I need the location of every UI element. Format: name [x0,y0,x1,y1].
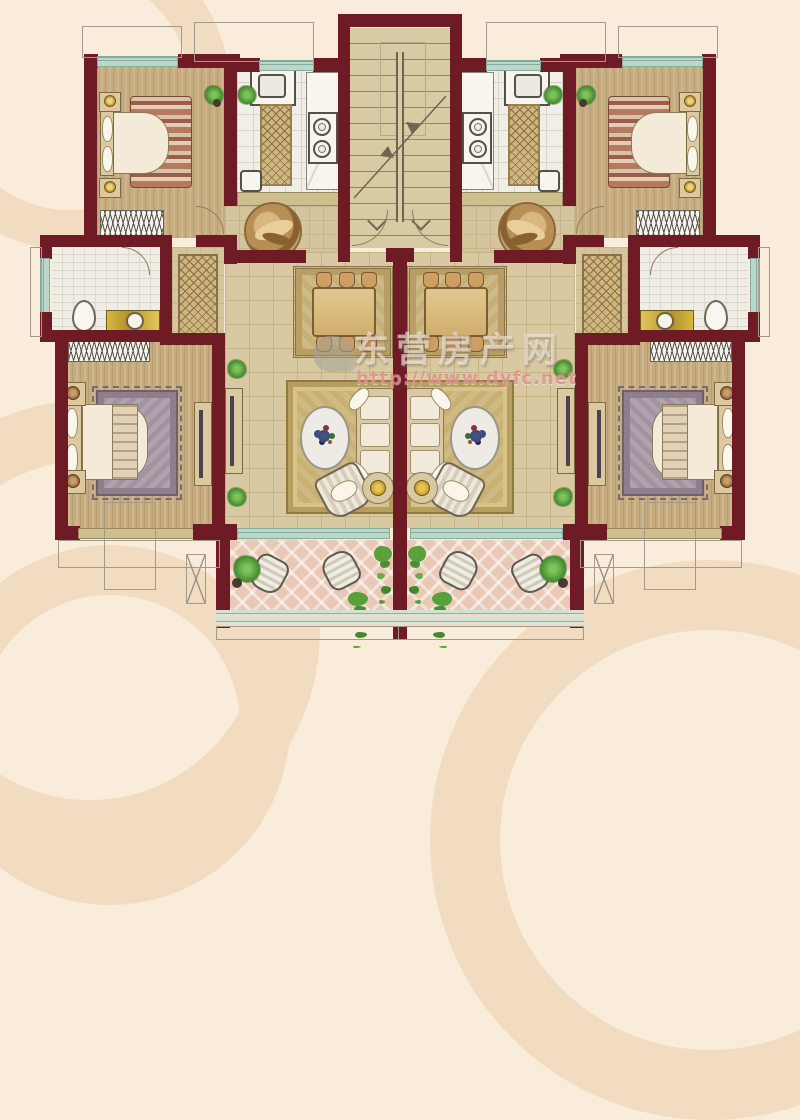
closet-rug [582,254,622,338]
wall-segment [628,235,716,247]
sofa-cushion [410,423,440,447]
balcony-sliding-door [237,528,390,539]
dining-chair [445,336,461,352]
flower-bouquet-icon [470,430,482,442]
plant-pot-icon [558,578,568,588]
toilet-icon [704,300,728,332]
burner-icon [313,140,331,158]
exterior-ledge-outline [30,247,42,337]
washer [240,170,262,192]
party-wall [400,248,407,538]
dining-chair [339,336,355,352]
wall-segment [84,54,97,247]
wall-segment [40,235,86,247]
rug-swirl-detail [507,230,539,247]
unit-left [0,0,400,702]
rug-swirl-detail [261,230,293,247]
exterior-ledge-outline [758,247,770,337]
plant-icon [544,86,562,104]
sink-basin-icon [258,74,286,98]
pillow [102,116,113,142]
lamp-icon [684,181,696,193]
stairwell-wall [400,14,462,27]
tv-cabinet [225,388,243,474]
wall-segment [575,333,640,345]
tv-screen-icon [566,396,570,466]
wall-segment [40,330,172,342]
wardrobe [68,340,150,362]
sofa-cushion [360,423,390,447]
wall-segment [732,342,745,540]
flower-bouquet-icon [318,430,330,442]
wall-segment [84,235,172,247]
lamp-icon [66,386,80,400]
wall-segment [55,526,80,540]
dining-chair [361,336,377,352]
sink-icon [656,312,674,330]
stairwell-wall [338,248,350,262]
plant-icon [238,86,256,104]
balcony-sliding-door [410,528,563,539]
dining-chair [445,272,461,288]
dining-chair [423,272,439,288]
plant-pot-icon [579,99,587,107]
plant-pot-icon [213,99,221,107]
tv-cabinet [194,402,212,486]
exterior-ledge-outline [618,26,718,58]
wardrobe [636,210,700,236]
wall-segment [460,58,487,72]
pillow [102,146,113,172]
stairwell-wall [450,248,462,262]
bed-mattress [631,112,687,174]
kitchen-runner-rug [260,104,292,186]
wardrobe [100,210,164,236]
wall-segment [628,330,760,342]
wall-segment [714,235,760,247]
balcony-railing [216,610,400,626]
bed-mattress [113,112,169,174]
wall-segment [55,342,68,540]
tv-screen-icon [199,410,203,478]
plant-icon [228,488,246,506]
washer [538,170,560,192]
dining-chair [361,272,377,288]
wall-segment [575,342,588,532]
wall-segment [160,333,225,345]
wall-segment [160,235,172,342]
wall-segment [494,250,576,263]
wall-segment [224,250,306,263]
dining-table [312,287,376,337]
dining-chair [339,272,355,288]
dining-chair [316,336,332,352]
bowl-icon [370,480,386,496]
tv-screen-icon [597,410,601,478]
dining-chair [423,336,439,352]
exterior-ledge-outline [486,22,606,62]
sink-basin-icon [514,74,542,98]
floorplan-page: { "watermark": { "site_name": "东营房产网", "… [0,0,800,702]
party-wall [393,248,400,538]
stairwell-wall [338,14,400,27]
exterior-ledge-outline [82,26,182,58]
burner-icon [313,118,331,136]
wall-segment [563,54,576,206]
vine-plants-icon [408,546,426,562]
dining-chair [468,336,484,352]
toilet-icon [72,300,96,332]
pillow [687,146,698,172]
plant-icon [554,488,572,506]
tv-screen-icon [230,396,234,466]
closet-rug [178,254,218,338]
kitchen-threshold [460,192,563,206]
bowl-icon [414,480,430,496]
plant-icon [228,360,246,378]
bed-quilt [662,404,688,480]
stairwell-wall [450,14,462,250]
exterior-ledge-outline [194,22,314,62]
stairwell-wall [338,14,350,250]
burner-icon [469,118,487,136]
pillow [687,116,698,142]
plant-icon [554,360,572,378]
lamp-icon [684,95,696,107]
lamp-icon [104,95,116,107]
unit-right [400,0,800,702]
wall-segment [628,235,640,342]
lamp-icon [104,181,116,193]
dining-chair [468,272,484,288]
balcony-railing [400,610,584,626]
ac-platform-outline [186,554,206,604]
wall-segment [212,342,225,532]
kitchen-threshold [237,192,340,206]
dining-table [424,287,488,337]
plant-pot-icon [232,578,242,588]
burner-icon [469,140,487,158]
wardrobe [650,340,732,362]
stairwell [350,28,450,248]
exterior-ledge-outline [216,626,402,640]
ac-platform-outline [594,554,614,604]
wall-segment [703,54,716,247]
wall-segment [313,58,340,72]
kitchen-runner-rug [508,104,540,186]
exterior-ledge-outline [398,626,584,640]
wall-segment [720,526,745,540]
bed-quilt [112,404,138,480]
dining-chair [316,272,332,288]
sink-icon [126,312,144,330]
vine-plants-icon [432,592,452,606]
lamp-icon [66,474,80,488]
wall-segment [224,54,237,206]
